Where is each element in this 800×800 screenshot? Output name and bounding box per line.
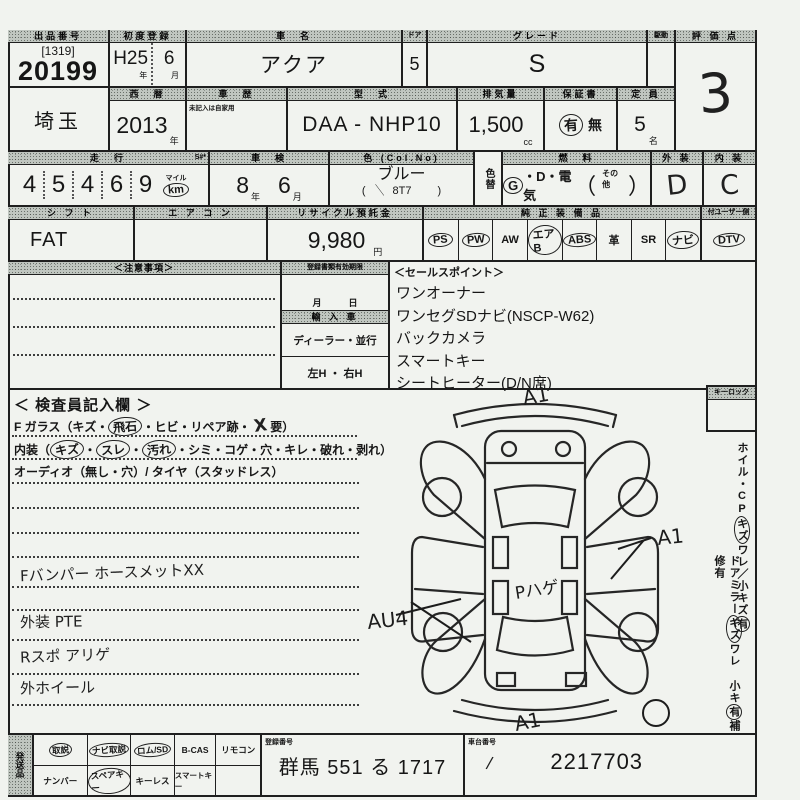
history-note: 未記入は自家用 <box>187 101 286 112</box>
glass-x-mark: X <box>252 415 268 437</box>
dtv-sub-label: 付ユーザー側 <box>702 207 755 220</box>
inspector-line <box>12 482 359 484</box>
inspection-month: 6 <box>278 172 291 199</box>
equip-sr: SR <box>632 220 667 260</box>
inspector-line <box>12 704 359 706</box>
shift-value: FAT <box>8 220 133 260</box>
interior-scuff: スレ <box>95 439 130 460</box>
capacity-cell: 定 員 5 名 <box>618 88 676 152</box>
equip-abs: ABS <box>562 232 596 248</box>
inspector-line <box>12 458 357 460</box>
handle-options: 左H ・ 右H <box>282 357 388 388</box>
import-label: 輸 入 車 <box>282 311 388 324</box>
first-reg-era: H25 <box>113 48 148 70</box>
drive-label: 駆動 <box>648 30 674 43</box>
shift-cell: シ フ ト FAT <box>8 207 135 262</box>
inspection-year-unit: 年 <box>251 190 260 205</box>
mark-rear: A1 <box>512 707 543 736</box>
dot: ・ <box>84 443 96 457</box>
notice-line <box>13 326 275 328</box>
equipment-label: 純 正 装 備 品 <box>424 207 700 220</box>
year-value: 2013 <box>116 112 167 139</box>
grade: S <box>428 43 646 85</box>
inspector-title: ＜ 検査員記入欄 ＞ <box>14 394 152 415</box>
inspector-line <box>12 639 359 641</box>
sales-point: ワンセグSDナビ(NSCP-W62) <box>396 306 755 329</box>
keylock-box: キーロック <box>706 385 757 432</box>
inspector-line <box>12 556 359 558</box>
item-rom-sd: ロム/SD <box>133 742 171 759</box>
notice-line <box>13 298 275 300</box>
audio-tire-line: オーディオ（無し・穴）/ タイヤ（スタッドレス） <box>14 463 283 480</box>
year-label: 西 暦 <box>110 88 185 101</box>
documents-label: 登録書類有効期限 <box>282 262 388 275</box>
mileage-digit: 5 <box>43 171 72 199</box>
score-value: 3 <box>673 40 759 145</box>
sales-point: ワンオーナー <box>396 283 755 306</box>
glass-line: F ガラス（キズ・ <box>14 420 108 434</box>
item-navi-manual: ナビ取説 <box>88 742 129 759</box>
interior-scratch: キズ <box>49 439 84 460</box>
displacement-label: 排気量 <box>458 88 543 101</box>
mileage-digit: 9 <box>130 171 159 199</box>
year-unit: 年 <box>170 134 179 149</box>
seller-region: 埼玉 <box>8 88 108 150</box>
score-cell: 評 価 点 3 <box>676 30 757 152</box>
plate-number-cell: 登録番号 群馬 551 る 1717 <box>262 735 465 797</box>
equip-aw: AW <box>493 220 528 260</box>
model-code: DAA - NHP10 <box>288 101 456 149</box>
fuel-options: ・D・電気 <box>523 166 574 204</box>
capacity-label: 定 員 <box>618 88 674 101</box>
interior-line: 内装（ <box>14 443 50 457</box>
history-label: 車 歴 <box>187 88 286 101</box>
year-cell: 西 暦 2013 年 <box>110 88 187 152</box>
car-name-label: 車 名 <box>187 30 401 43</box>
chassis-number-cell: 車台番号 / 2217703 <box>465 735 757 797</box>
fuel-paren-left: （ <box>574 169 596 201</box>
color-cell: 色 (Col.No) ブルー ( ＼ 8T7 ) <box>330 152 475 207</box>
item-manual: 取説 <box>48 742 72 758</box>
recycle-fee: 9,980 <box>308 227 366 254</box>
equip-navi: ナビ <box>667 230 700 250</box>
lot-number: 20199 <box>8 58 108 84</box>
inspector-note: Rスポ アリゲ <box>20 643 111 667</box>
capacity-value: 5 <box>634 113 646 137</box>
mark-center: Pハゲ <box>514 577 561 604</box>
exterior-grade-cell: 外 装 D <box>652 152 704 207</box>
shift-label: シ フ ト <box>8 207 133 220</box>
equip-ps: PS <box>428 232 454 248</box>
import-options: ディーラー・並行 <box>282 324 388 357</box>
item-keyless: キーレス <box>131 766 175 795</box>
mirror-note: ワレ 小キ <box>728 643 740 704</box>
keylock-label: キーロック <box>708 387 755 400</box>
first-reg-year-unit: 年 <box>139 70 147 81</box>
warranty-label: 保証書 <box>545 88 616 101</box>
warranty-cell: 保証書 有 無 <box>545 88 618 152</box>
color-check-mark: ＼ <box>373 183 386 198</box>
interior-line: ・シミ・コゲ・穴・キレ・破れ・剥れ） <box>176 443 392 457</box>
exterior-grade: D <box>650 162 704 207</box>
plate-number: 群馬 551 る 1717 <box>262 751 463 780</box>
shipping-items-grid: 取説 ナビ取説 ロム/SD B-CAS リモコン ナンバー スペアキー キーレス… <box>34 735 262 797</box>
mileage-label: 走 行 <box>90 153 126 163</box>
color-change-label: 色替 <box>481 168 495 190</box>
mileage-unit-km: km <box>163 182 190 198</box>
mileage-s-mark: S#* <box>195 152 206 164</box>
equip-dtv: DTV <box>712 232 745 248</box>
inspector-line <box>12 507 359 509</box>
inspector-line <box>12 586 359 588</box>
inspector-note: 外装 PTE <box>20 610 83 632</box>
color-code-paren-left: ( <box>362 184 366 198</box>
mark-left: AU4 <box>366 606 409 634</box>
interior-grade-cell: 内 装 C <box>704 152 757 207</box>
dtv-cell: 付ユーザー側 DTV <box>702 207 757 262</box>
inspection-month-unit: 月 <box>293 190 302 205</box>
inspector-note: Fバンパー ホースメットXX <box>20 559 205 586</box>
equip-pw: PW <box>461 232 490 248</box>
inspection-label: 車 検 <box>210 152 328 165</box>
grade-label: グレード <box>428 30 646 43</box>
chassis-check-mark: / <box>485 752 494 772</box>
fuel-cell: 燃 料 G ・D・電気 （ その他 ） <box>503 152 652 207</box>
inspection-year: 8 <box>236 172 249 199</box>
model-code-label: 型 式 <box>288 88 456 101</box>
fuel-label: 燃 料 <box>503 152 650 165</box>
mirror-yes-circled: 有 <box>725 703 742 720</box>
first-reg-month: 6 <box>164 48 175 70</box>
documents-date-units: 月 日 <box>282 275 388 311</box>
sales-point: バックカメラ <box>396 328 755 351</box>
glass-line: ・ヒビ・リペア跡・ <box>142 420 250 434</box>
glass-line: 要） <box>270 420 294 434</box>
fuel-paren-right: ） <box>628 169 650 201</box>
color-code: 8T7 <box>393 184 412 198</box>
door-count: 5 <box>403 43 426 85</box>
mileage-cell: 走 行 S#* 4 5 4 6 9 マイル km <box>8 152 210 207</box>
fuel-gasoline: G <box>502 176 523 194</box>
car-damage-diagram: A1 A1 AU4 Pハゲ A1 <box>366 387 706 737</box>
glass-flying-stone: 飛石 <box>108 416 143 437</box>
inspector-line <box>12 673 359 675</box>
first-reg-month-unit: 月 <box>171 70 179 81</box>
inspection-cell: 車 検 8 年 6 月 <box>210 152 330 207</box>
interior-stain: 汚れ <box>141 439 176 460</box>
mileage-unit-mile: マイル <box>165 173 186 183</box>
mirror-scratch-circled: キズ <box>725 614 743 643</box>
mark-right: A1 <box>656 523 685 550</box>
shipping-items-label: 発送品 <box>13 752 27 778</box>
warranty-yes: 有 <box>558 113 583 137</box>
fuel-other-label: その他 <box>602 168 622 190</box>
region-cell: 埼玉 <box>8 88 110 152</box>
first-registration-label: 初度登録 <box>110 30 185 43</box>
inspector-line <box>12 435 357 437</box>
door-cell: ドア 5 <box>403 30 428 88</box>
wheel-note: ホイル・CP <box>736 442 748 516</box>
drive-cell: 駆動 <box>648 30 676 88</box>
item-bcas: B-CAS <box>175 735 217 765</box>
wheel-scratch-circled: キズ <box>733 515 751 544</box>
sales-points-cell: ＜セールスポイント＞ ワンオーナー ワンセグSDナビ(NSCP-W62) バック… <box>390 262 757 390</box>
car-name: アクア <box>187 43 401 85</box>
equip-leather: 革 <box>597 220 632 260</box>
color-code-paren-right: ) <box>437 184 441 198</box>
item-smart-key: スマートキー <box>175 766 217 795</box>
capacity-unit: 名 <box>649 134 658 149</box>
door-label: ドア <box>403 30 426 43</box>
shipping-items-label-cell: 発送品 <box>8 735 34 797</box>
inspector-line <box>12 532 359 534</box>
item-plate: ナンバー <box>34 766 88 795</box>
recycle-fee-cell: リサイクル預託金 9,980 円 <box>268 207 424 262</box>
color-value: ブルー <box>330 166 473 184</box>
warranty-no: 無 <box>588 115 602 135</box>
color-change-cell: 色替 <box>475 152 503 207</box>
auction-sheet: 出品番号 [1319] 20199 初度登録 H25 年 6 月 車 名 アクア… <box>0 0 800 800</box>
color-label: 色 (Col.No) <box>330 152 473 165</box>
mirror-note: ドアミラー <box>728 555 740 615</box>
displacement-cell: 排気量 1,500 cc <box>458 88 545 152</box>
lot-number-label: 出品番号 <box>8 30 108 43</box>
displacement-unit: cc <box>524 137 533 149</box>
equip-airbag: エアB <box>527 224 563 256</box>
documents-cell: 登録書類有効期限 月 日 輸 入 車 ディーラー・並行 左H ・ 右H <box>282 262 390 390</box>
dot: ・ <box>130 443 142 457</box>
mark-front: A1 <box>521 387 551 410</box>
first-registration-cell: 初度登録 H25 年 6 月 <box>110 30 187 88</box>
mileage-digit: 4 <box>72 171 101 199</box>
chassis-number-label: 車台番号 <box>465 735 755 747</box>
mirror-note-column: ドアミラーキズワレ 小キ有補修有 <box>712 555 742 735</box>
grade-cell: グレード S <box>428 30 648 88</box>
chassis-number: 2217703 <box>550 749 643 775</box>
lot-number-cell: 出品番号 [1319] 20199 <box>8 30 110 88</box>
equipment-cell: 純 正 装 備 品 PS PW AW エアB ABS 革 SR ナビ <box>424 207 702 262</box>
recycle-fee-label: リサイクル預託金 <box>268 207 422 220</box>
item-spare-key: スペアキー <box>88 766 131 795</box>
car-name-cell: 車 名 アクア <box>187 30 403 88</box>
model-code-cell: 型 式 DAA - NHP10 <box>288 88 458 152</box>
car-outline <box>412 404 658 722</box>
mileage-digit: 6 <box>101 171 130 199</box>
sales-point: スマートキー <box>396 351 755 374</box>
displacement-value: 1,500 <box>468 112 523 138</box>
history-cell: 車 歴 未記入は自家用 <box>187 88 288 152</box>
hand-strokes <box>396 538 669 726</box>
inspector-area: ＜ 検査員記入欄 ＞ F ガラス（キズ・飛石・ヒビ・リペア跡・ X 要） 内装（… <box>8 390 757 735</box>
mileage-digit: 4 <box>16 171 43 199</box>
recycle-fee-unit: 円 <box>373 245 382 260</box>
inspector-note: 外ホイール <box>20 676 95 698</box>
interior-grade: C <box>703 163 757 206</box>
aircon-cell: エ ア コ ン <box>135 207 268 262</box>
notice-line <box>13 354 275 356</box>
notices-title: ＜注意事項＞ <box>8 262 280 275</box>
item-remote: リモコン <box>216 735 260 765</box>
notices-cell: ＜注意事項＞ <box>8 262 282 390</box>
sales-points-title: ＜セールスポイント＞ <box>390 262 755 280</box>
plate-number-label: 登録番号 <box>262 735 463 747</box>
aircon-label: エ ア コ ン <box>135 207 266 220</box>
